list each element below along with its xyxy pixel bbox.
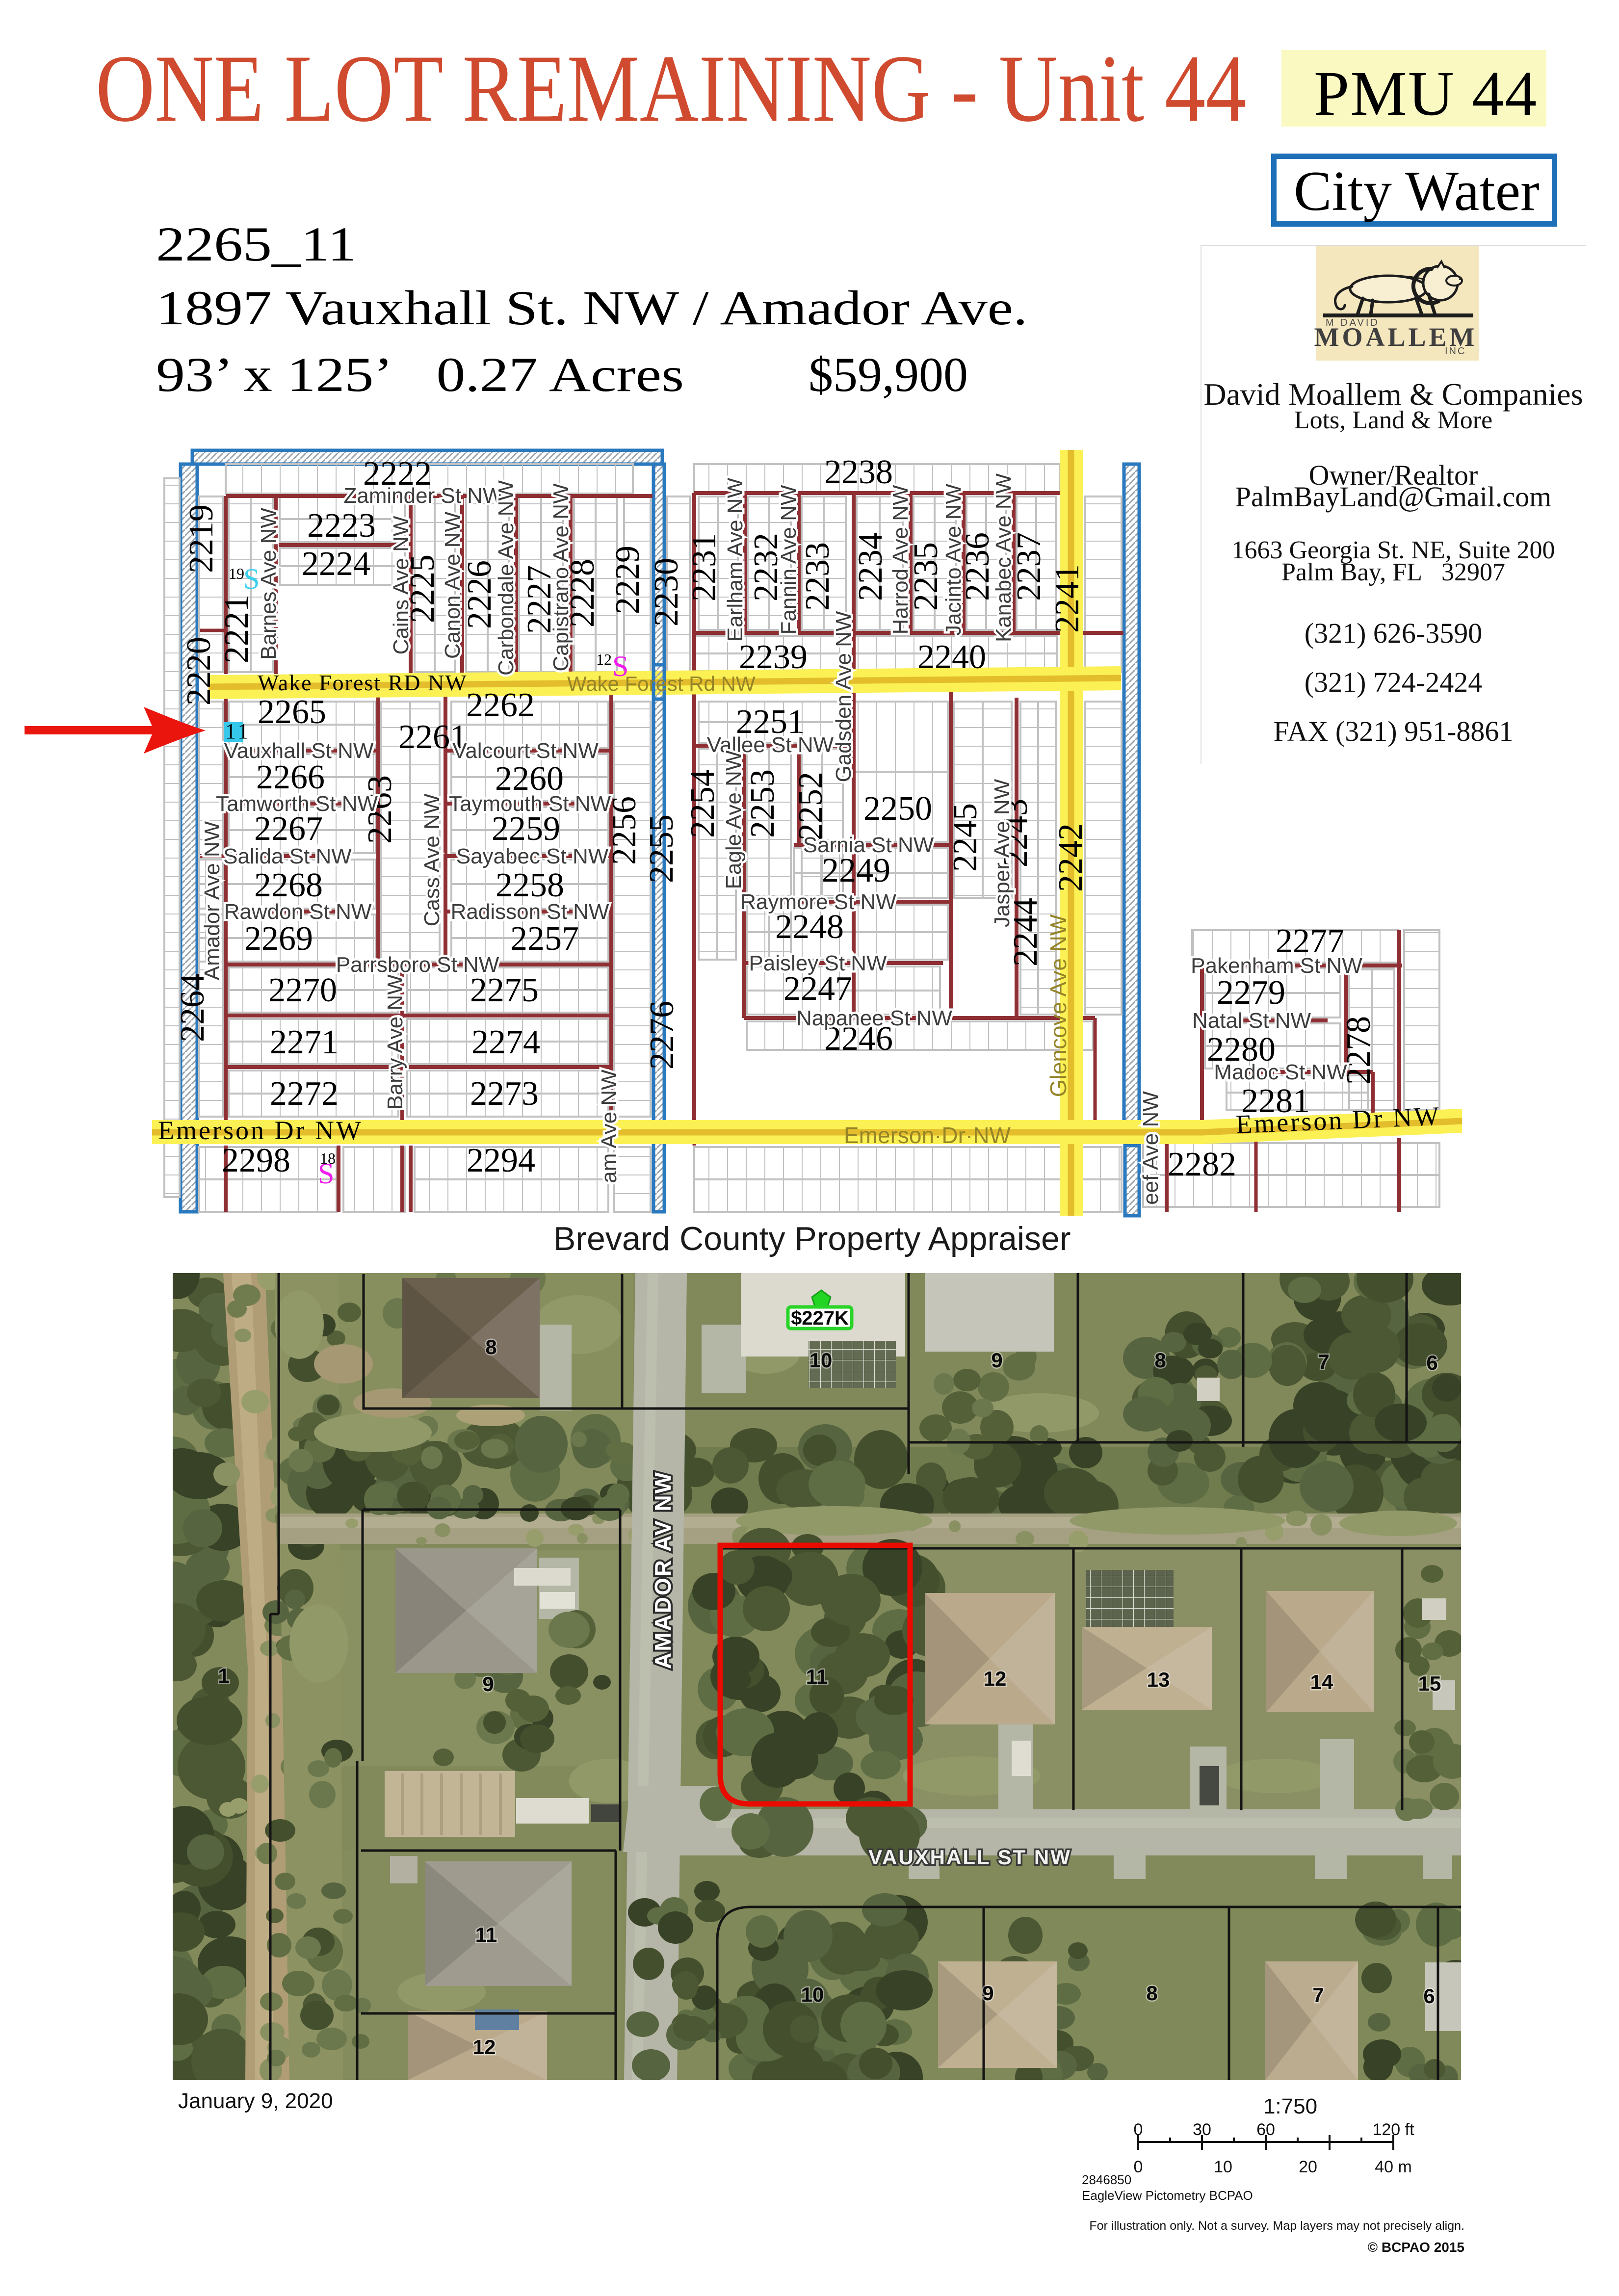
svg-text:© BCPAO 2015: © BCPAO 2015: [1367, 2240, 1464, 2255]
svg-text:120 ft: 120 ft: [1372, 2120, 1414, 2139]
svg-text:Barry Ave NW: Barry Ave NW: [383, 974, 407, 1110]
svg-text:15: 15: [1418, 1672, 1441, 1695]
svg-text:2220: 2220: [180, 637, 218, 705]
svg-text:$227K: $227K: [791, 1307, 849, 1329]
svg-text:9: 9: [982, 1982, 993, 2005]
svg-text:9: 9: [482, 1672, 494, 1696]
svg-text:2262: 2262: [466, 686, 535, 724]
svg-text:2223: 2223: [307, 507, 376, 545]
svg-text:2265: 2265: [258, 693, 326, 731]
svg-text:9: 9: [991, 1349, 1002, 1372]
svg-text:2269: 2269: [244, 920, 313, 958]
svg-text:2229: 2229: [609, 546, 647, 614]
svg-text:10: 10: [801, 1983, 824, 2006]
svg-text:Canon Ave NW: Canon Ave NW: [441, 512, 465, 659]
svg-text:Carbondale Ave NW: Carbondale Ave NW: [494, 480, 518, 676]
svg-text:Zaminder St NW: Zaminder St NW: [343, 484, 503, 508]
svg-text:Capistrano Ave NW: Capistrano Ave NW: [549, 483, 573, 672]
svg-text:Tamworth St NW: Tamworth St NW: [216, 792, 378, 816]
svg-text:10: 10: [1214, 2158, 1232, 2176]
svg-text:2255: 2255: [643, 814, 680, 883]
svg-text:2252: 2252: [792, 772, 830, 840]
svg-text:2256: 2256: [605, 796, 643, 865]
svg-text:11: 11: [806, 1665, 828, 1688]
svg-text:2254: 2254: [684, 769, 722, 838]
svg-text:Gadsden Ave NW: Gadsden Ave NW: [832, 611, 856, 782]
svg-text:Rawdon St NW: Rawdon St NW: [224, 900, 372, 924]
svg-text:Napanee St NW: Napanee St NW: [796, 1006, 952, 1030]
svg-text:2226: 2226: [461, 560, 498, 629]
svg-text:8: 8: [1154, 1349, 1166, 1372]
svg-text:Parrsboro St NW: Parrsboro St NW: [336, 953, 499, 977]
svg-text:2230: 2230: [648, 558, 685, 626]
svg-text:14: 14: [1310, 1670, 1333, 1694]
svg-text:Emerson Dr NW: Emerson Dr NW: [158, 1116, 363, 1145]
svg-text:Cains Ave NW: Cains Ave NW: [389, 516, 413, 654]
svg-text:0: 0: [1134, 2158, 1143, 2176]
svg-text:EagleView Pictometry BCPAO: EagleView Pictometry BCPAO: [1082, 2188, 1253, 2203]
svg-text:2268: 2268: [254, 866, 323, 904]
svg-text:2282: 2282: [1168, 1146, 1236, 1183]
svg-text:60: 60: [1256, 2120, 1275, 2139]
svg-text:2233: 2233: [799, 542, 836, 611]
svg-text:2241: 2241: [1048, 564, 1086, 633]
svg-text:Wake Forest RD NW: Wake Forest RD NW: [258, 670, 468, 695]
svg-text:8: 8: [485, 1335, 496, 1358]
svg-text:Amador Ave NW: Amador Ave NW: [200, 821, 224, 980]
svg-text:2235: 2235: [907, 542, 945, 611]
svg-text:Taymouth St NW: Taymouth St NW: [449, 792, 611, 816]
svg-text:1: 1: [218, 1664, 229, 1687]
svg-text:12: 12: [473, 2035, 496, 2059]
svg-text:6: 6: [1426, 1351, 1437, 1374]
svg-text:2242: 2242: [1052, 823, 1090, 892]
svg-text:7: 7: [1318, 1350, 1329, 1373]
svg-text:2224: 2224: [302, 545, 370, 583]
svg-text:2274: 2274: [471, 1023, 540, 1061]
svg-text:2237: 2237: [1010, 532, 1048, 601]
svg-text:Jacinto Ave NW: Jacinto Ave NW: [941, 484, 966, 636]
svg-text:Emerson·Dr·NW: Emerson·Dr·NW: [844, 1122, 1011, 1148]
svg-text:2257: 2257: [510, 920, 579, 958]
svg-text:2846850: 2846850: [1082, 2172, 1131, 2187]
svg-text:2266: 2266: [256, 758, 325, 796]
svg-text:2221: 2221: [218, 595, 256, 663]
svg-text:2275: 2275: [470, 971, 539, 1009]
svg-text:20: 20: [1299, 2158, 1317, 2176]
svg-text:2298: 2298: [222, 1142, 290, 1179]
svg-text:eef Ave NW: eef Ave NW: [1139, 1091, 1163, 1205]
svg-text:S: S: [243, 563, 260, 595]
svg-text:Sayabec St NW: Sayabec St NW: [456, 844, 609, 868]
svg-text:8: 8: [1146, 1982, 1157, 2005]
svg-text:S: S: [318, 1157, 334, 1190]
svg-text:40 m: 40 m: [1375, 2158, 1412, 2176]
svg-text:12: 12: [984, 1667, 1007, 1690]
svg-text:Madoc St NW: Madoc St NW: [1214, 1060, 1347, 1084]
svg-text:2245: 2245: [946, 803, 984, 872]
svg-text:2270: 2270: [268, 971, 337, 1009]
svg-text:For illustration only. Not a s: For illustration only. Not a survey. Map…: [1089, 2219, 1464, 2233]
svg-text:Eagle Ave NW: Eagle Ave NW: [722, 750, 746, 889]
svg-text:30: 30: [1193, 2120, 1211, 2139]
svg-text:2250: 2250: [863, 790, 932, 828]
svg-text:AMADOR AV NW: AMADOR AV NW: [650, 1471, 676, 1669]
svg-text:Glencove Ave NW: Glencove Ave NW: [1045, 914, 1071, 1097]
svg-text:2249: 2249: [822, 852, 890, 889]
svg-text:2231: 2231: [685, 533, 723, 601]
svg-text:Harrod Ave NW: Harrod Ave NW: [888, 485, 913, 634]
svg-text:13: 13: [1147, 1668, 1170, 1691]
svg-text:2272: 2272: [270, 1075, 339, 1113]
svg-text:12: 12: [596, 651, 612, 668]
svg-text:S: S: [612, 650, 628, 682]
svg-text:Fannin Ave NW: Fannin Ave NW: [777, 485, 801, 634]
svg-text:2253: 2253: [744, 769, 782, 838]
svg-text:2279: 2279: [1217, 974, 1285, 1012]
svg-text:2238: 2238: [824, 453, 893, 491]
svg-text:Raymore St NW: Raymore St NW: [740, 890, 896, 914]
svg-text:Pakenham St NW: Pakenham St NW: [1191, 954, 1362, 978]
svg-text:Wake Forest Rd NW: Wake Forest Rd NW: [567, 672, 756, 695]
svg-text:2264: 2264: [174, 973, 211, 1042]
svg-text:2271: 2271: [270, 1023, 339, 1061]
svg-text:2219: 2219: [183, 504, 220, 573]
svg-text:Cass Ave NW: Cass Ave NW: [420, 793, 444, 926]
svg-text:0: 0: [1134, 2120, 1143, 2139]
svg-text:2294: 2294: [467, 1142, 535, 1179]
svg-text:2247: 2247: [783, 970, 852, 1008]
svg-text:1:750: 1:750: [1263, 2094, 1317, 2118]
svg-text:Sarnia St NW: Sarnia St NW: [803, 833, 934, 857]
svg-text:Valcourt St NW: Valcourt St NW: [452, 739, 599, 763]
svg-text:2240: 2240: [917, 638, 986, 676]
svg-text:19: 19: [229, 565, 244, 582]
svg-text:11: 11: [475, 1923, 497, 1946]
svg-text:Radisson St NW: Radisson St NW: [451, 900, 609, 924]
svg-text:2276: 2276: [643, 1001, 681, 1070]
svg-text:2239: 2239: [739, 638, 808, 676]
svg-text:Salida St NW: Salida St NW: [223, 844, 352, 868]
svg-text:am Ave NW: am Ave NW: [597, 1070, 621, 1183]
svg-text:2234: 2234: [852, 532, 889, 601]
svg-text:2258: 2258: [496, 866, 564, 904]
svg-text:Natal St NW: Natal St NW: [1192, 1009, 1311, 1033]
svg-text:Kanabec Ave NW: Kanabec Ave NW: [992, 473, 1016, 643]
svg-text:Jasper Ave NW: Jasper Ave NW: [990, 779, 1014, 927]
svg-text:Barnes Ave NW: Barnes Ave NW: [257, 508, 281, 660]
svg-text:2273: 2273: [470, 1075, 539, 1113]
svg-text:VAUXHALL ST NW: VAUXHALL ST NW: [868, 1846, 1071, 1869]
svg-text:11: 11: [225, 719, 251, 743]
svg-text:Paisley St NW: Paisley St NW: [749, 951, 887, 975]
svg-text:10: 10: [809, 1349, 833, 1372]
svg-text:7: 7: [1312, 1983, 1324, 2007]
svg-text:6: 6: [1423, 1984, 1435, 2008]
svg-text:Earlham Ave NW: Earlham Ave NW: [723, 477, 747, 642]
